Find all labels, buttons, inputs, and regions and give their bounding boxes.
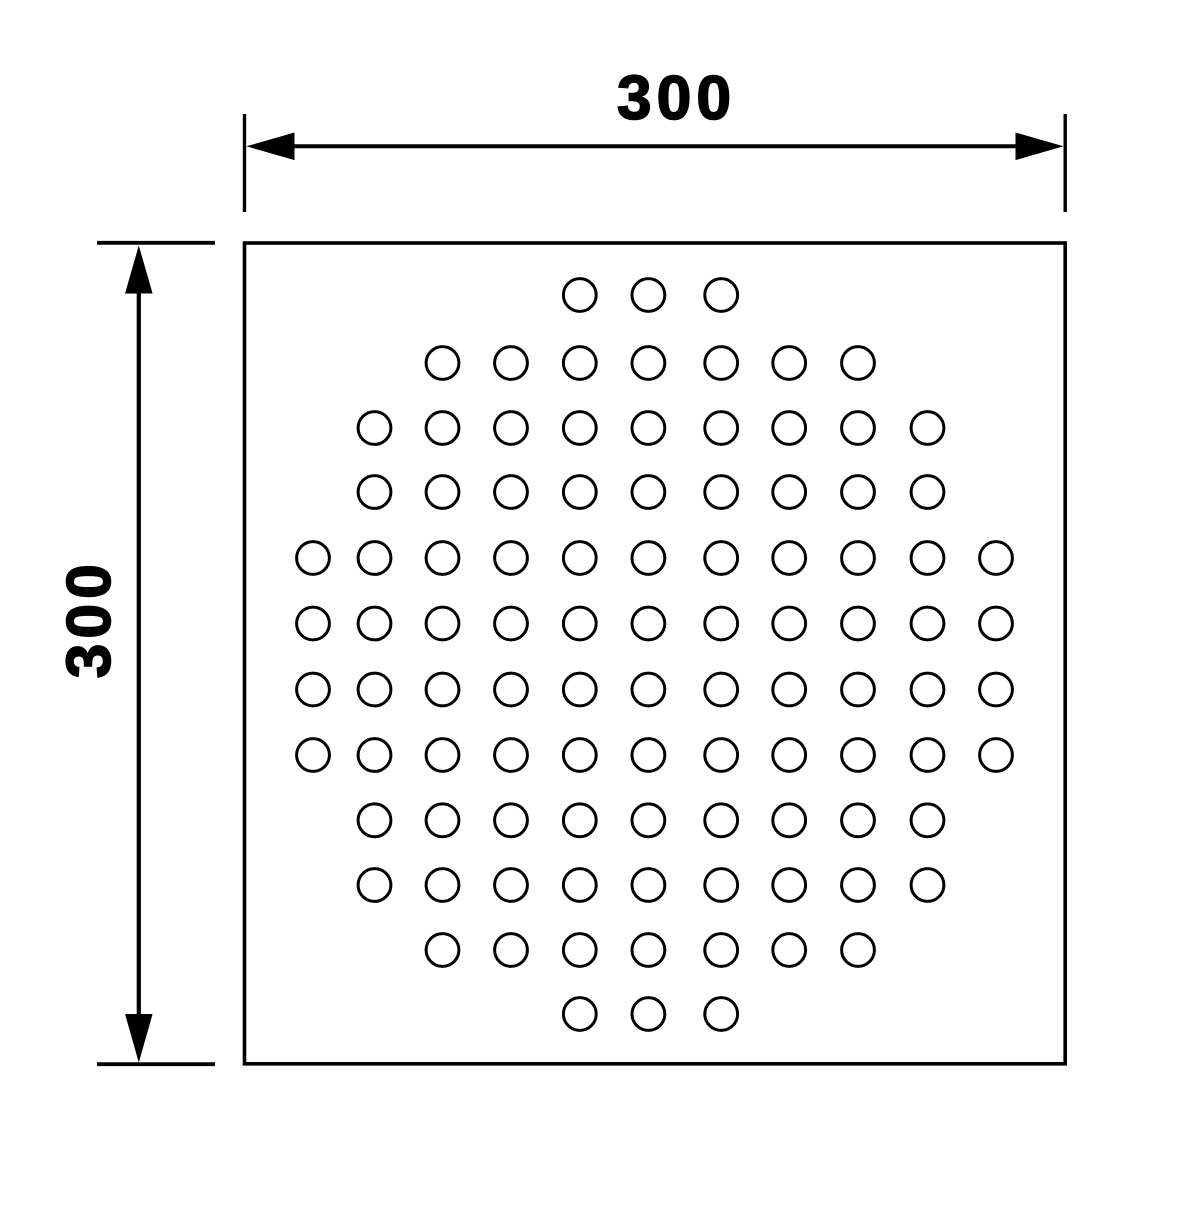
svg-text:300: 300 [617, 63, 736, 133]
svg-text:300: 300 [54, 559, 124, 678]
